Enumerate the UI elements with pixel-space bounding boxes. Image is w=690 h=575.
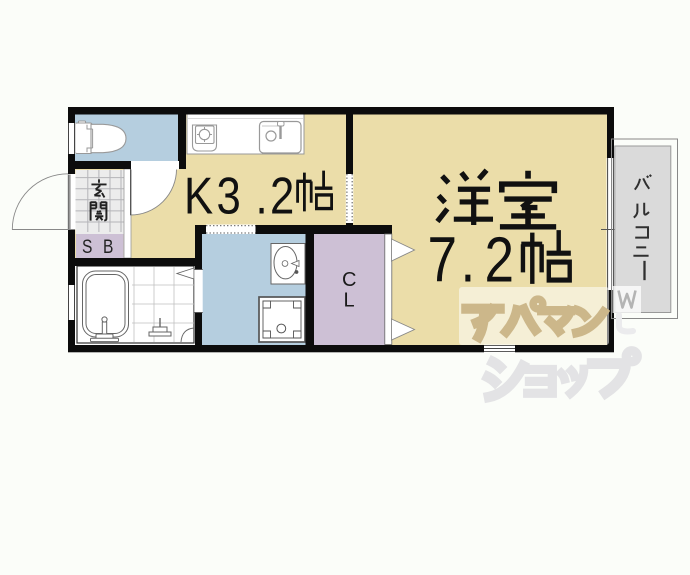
svg-text:2: 2 (270, 168, 294, 225)
svg-text:L: L (344, 290, 355, 312)
svg-text:2: 2 (485, 225, 515, 296)
svg-text:.: . (461, 225, 476, 296)
svg-text:B: B (103, 236, 113, 258)
svg-text:7: 7 (428, 225, 458, 296)
svg-text:S: S (82, 236, 92, 258)
svg-text:.: . (256, 168, 268, 225)
svg-text:K: K (184, 168, 213, 225)
svg-text:C: C (342, 269, 356, 291)
svg-text:3: 3 (217, 168, 241, 225)
